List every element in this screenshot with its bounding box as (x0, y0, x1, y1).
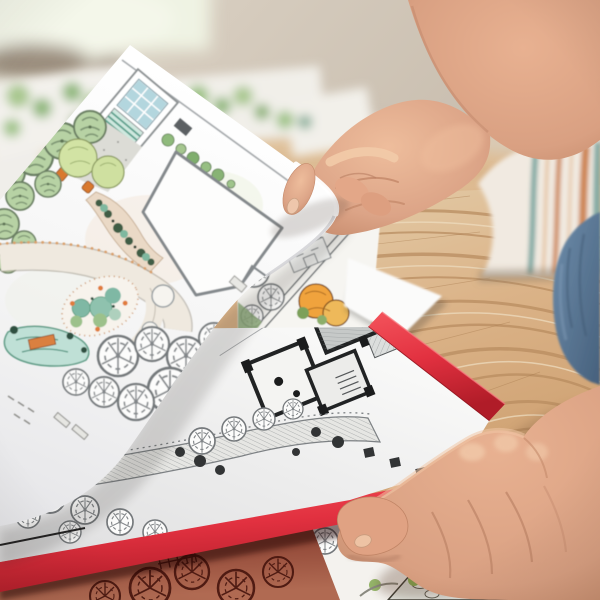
scene-canvas (0, 0, 600, 600)
vignette-overlay (0, 0, 600, 600)
photo-recreation (0, 0, 600, 600)
